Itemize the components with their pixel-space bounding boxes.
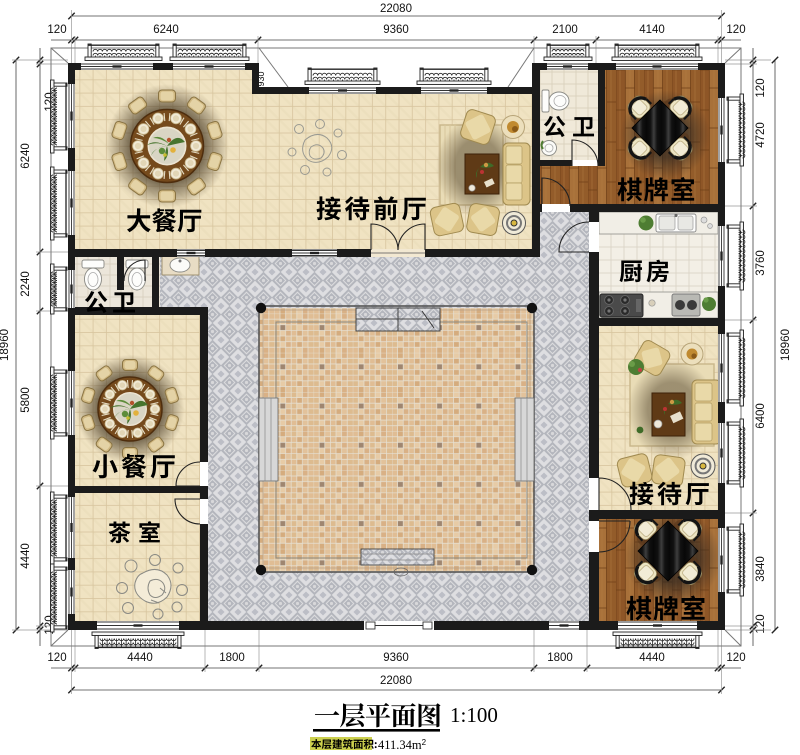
svg-text:6240: 6240: [20, 143, 32, 169]
svg-text:1800: 1800: [547, 652, 573, 664]
svg-text:120: 120: [726, 652, 745, 664]
svg-text:120: 120: [755, 614, 767, 633]
svg-text:4720: 4720: [755, 122, 767, 148]
svg-text:411.34m2: 411.34m2: [378, 738, 427, 750]
svg-text:4440: 4440: [20, 543, 32, 569]
svg-text:4440: 4440: [127, 652, 153, 664]
svg-text:6400: 6400: [755, 403, 767, 429]
svg-text:120: 120: [47, 652, 66, 664]
svg-text:2240: 2240: [20, 271, 32, 297]
svg-text:18960: 18960: [780, 329, 792, 361]
svg-text:3840: 3840: [755, 556, 767, 582]
svg-text:22080: 22080: [380, 675, 412, 687]
svg-text:22080: 22080: [380, 3, 412, 15]
svg-text:1800: 1800: [219, 652, 245, 664]
svg-text:9360: 9360: [383, 24, 409, 36]
svg-text:120: 120: [726, 24, 745, 36]
svg-text:9360: 9360: [383, 652, 409, 664]
svg-text:120: 120: [755, 78, 767, 97]
svg-text:1:100: 1:100: [450, 703, 498, 727]
svg-text:5800: 5800: [20, 387, 32, 413]
svg-text:3760: 3760: [755, 250, 767, 276]
svg-text:6240: 6240: [153, 24, 179, 36]
svg-text:2100: 2100: [552, 24, 578, 36]
svg-text:4140: 4140: [639, 24, 665, 36]
svg-text:18960: 18960: [0, 329, 11, 361]
svg-text:120: 120: [47, 24, 66, 36]
svg-text:4440: 4440: [639, 652, 665, 664]
